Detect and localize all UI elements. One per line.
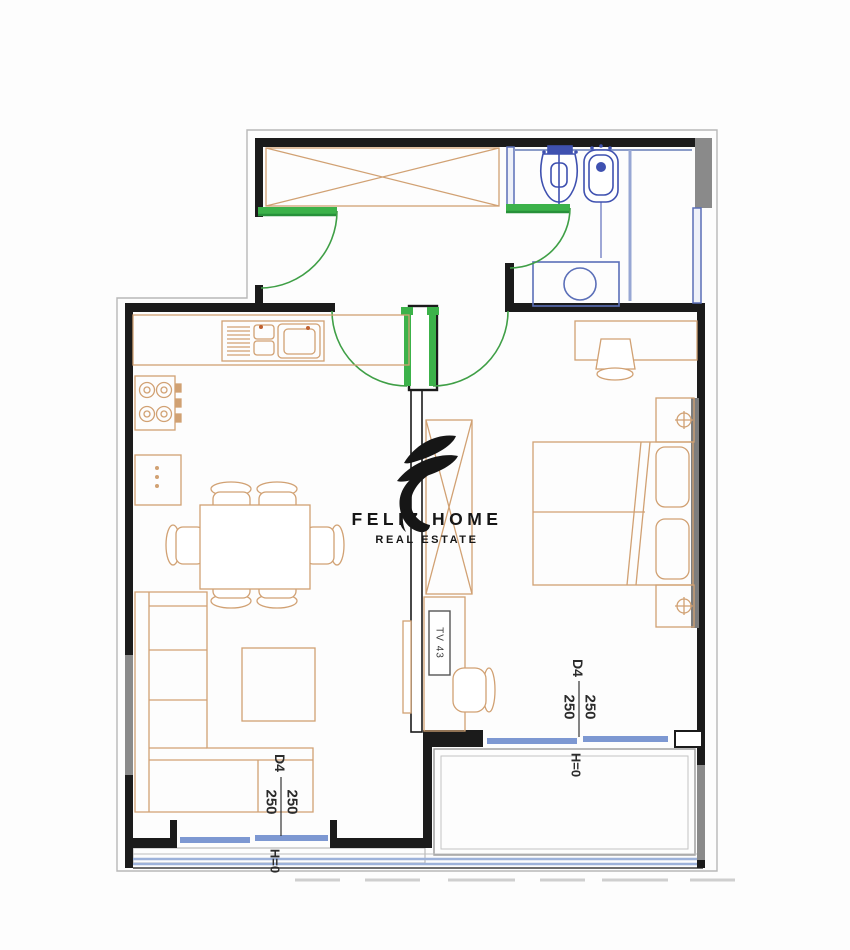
dim-label: 250 [263,789,280,814]
bidet [584,144,618,258]
bedroom-window-glass-right [583,736,668,742]
wall-bath-bottom [505,303,705,312]
dim-living-window: D4 250 250 H=0 [263,754,301,873]
kitchen-sink [222,321,324,361]
dim-label: 250 [561,694,578,719]
kitchen-cabinet [135,455,181,505]
bedroom-door [427,307,508,386]
sofa [135,592,313,812]
door-code-label: D4 [272,754,288,772]
brand-tagline: REAL ESTATE [375,534,478,546]
tv-43-unit: TV 43 [429,611,450,675]
stove [135,376,181,430]
living-room-door [332,307,413,386]
entrance-door [258,207,337,288]
floor-plan-canvas: TV 43 D4 250 250 H=0 D4 250 250 H=0 FELI… [0,0,850,950]
desk-chair [596,339,635,369]
wall-living-bottom-right [330,838,432,848]
bed-headboard-strip [691,398,699,628]
bathroom-wall-left [507,147,514,207]
bathroom-wall-right [693,208,701,303]
wall-block-bathroom-corner [695,138,712,208]
dim-bedroom-window: D4 250 250 H=0 [561,659,599,777]
wall-left [125,312,133,868]
double-bed [533,442,693,585]
living-window-glass-right [255,835,328,841]
brand-name: FELIZ HOME [352,509,503,529]
wall-balcony-step [423,730,432,846]
wall-room-divider [411,388,422,732]
dim-label: 250 [582,694,599,719]
window-right-wall [697,765,705,860]
wall-living-top [125,303,335,312]
kitchen [133,315,409,505]
logo: FELIZ HOME REAL ESTATE [352,435,503,546]
sill-height-label: H=0 [569,753,584,777]
nightstand-bottom [656,585,694,627]
tv-size-label: TV 43 [434,627,445,659]
pillow [656,519,689,579]
living-window-glass-left [180,837,250,843]
balcony-bedroom [434,749,695,855]
dining-table [200,505,310,589]
washing-unit [533,262,619,306]
balcony-railing [133,854,735,880]
bathroom [507,144,701,306]
coffee-table [242,648,315,721]
bedroom-desk [575,321,697,360]
dresser-chair [453,668,486,712]
bathroom-door [506,204,570,268]
dining-set [166,482,344,608]
hall-wardrobe [266,148,499,206]
pillow [656,447,689,507]
bedroom-window-glass-left [487,738,577,744]
wall-hall-left-upper [255,147,263,217]
sill-height-label: H=0 [268,849,283,873]
wall-top [255,138,712,147]
nightstand-top [656,398,694,442]
wall-bath-left-lower [505,263,514,305]
window-left-wall [125,655,133,775]
dim-label: 250 [284,789,301,814]
living-tv [403,621,411,713]
door-code-label: D4 [570,659,586,677]
toilet [541,146,578,212]
kitchen-counter [133,315,409,365]
wall-living-bottom-left [125,838,177,848]
wall-bedroom-bottom-right [675,731,702,747]
